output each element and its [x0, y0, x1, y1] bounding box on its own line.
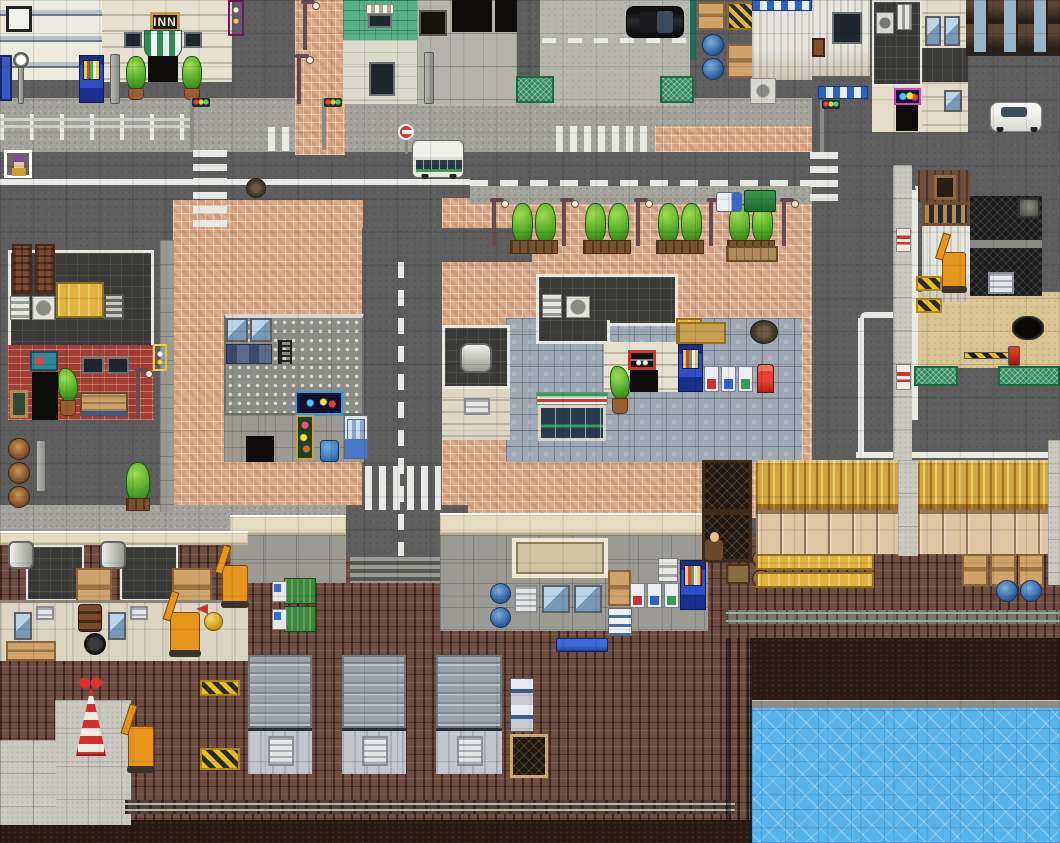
bar-shutters	[226, 344, 272, 364]
bar-neon-sign[interactable]	[295, 391, 343, 415]
tree-planters-3	[656, 240, 704, 254]
water-tank-1	[8, 541, 34, 569]
flower-stand[interactable]	[296, 415, 314, 460]
street-tree-6	[681, 203, 702, 243]
bar-wall	[224, 415, 364, 462]
blue-barrel-s2	[490, 607, 511, 628]
crane-rail	[726, 610, 1060, 624]
concrete-recess	[419, 10, 447, 36]
player-event-marker[interactable]	[4, 150, 32, 178]
inn-window-right	[184, 32, 202, 48]
sedan-roof	[639, 12, 657, 32]
chimney-1	[12, 244, 32, 294]
utility-pole-2	[424, 52, 434, 104]
warehouse-window-2	[108, 612, 126, 640]
east-edge-walk	[1048, 440, 1060, 585]
minibus[interactable]	[412, 140, 464, 178]
concrete-pad-2	[0, 740, 56, 825]
water-tank-2	[100, 541, 126, 569]
garage-door-1[interactable]	[452, 0, 492, 32]
container-stack	[510, 678, 534, 732]
crosswalk-east	[810, 152, 838, 202]
excavator-pad[interactable]	[128, 726, 154, 770]
vroad-dash	[398, 262, 404, 556]
warehouse-vent-1	[36, 606, 54, 620]
city-map: INN	[0, 0, 1060, 843]
recycle-bin-s-red[interactable]	[630, 583, 645, 608]
cream-roofband	[922, 48, 968, 82]
parking-dash	[542, 38, 688, 43]
trash-can[interactable]	[320, 440, 339, 462]
gray-box-stack	[658, 558, 678, 582]
brick-band-east	[655, 126, 812, 152]
blue-barrel-se1	[996, 580, 1018, 602]
guardrail	[0, 114, 190, 140]
street-tree-1	[512, 203, 533, 243]
site-entrance-door[interactable]	[934, 175, 956, 200]
label-crates-1	[962, 554, 988, 586]
recycle-bin-blue[interactable]	[721, 366, 736, 392]
site-left-walk	[893, 165, 912, 460]
wall-b-window-1	[542, 585, 570, 613]
white-sedan-windows	[1001, 107, 1027, 117]
shop-blue-awning	[818, 86, 868, 99]
pallet-stack	[608, 608, 632, 636]
street-tree-3	[585, 203, 606, 243]
menu-chalkboard[interactable]	[10, 390, 28, 418]
recycle-bin-s-green[interactable]	[664, 583, 679, 608]
gold-crates-row-a	[756, 554, 874, 570]
street-lamp-row-4	[709, 202, 713, 246]
store-roof-ext	[536, 320, 610, 344]
street-lamp-path-1	[303, 4, 307, 50]
cream-window-2	[944, 16, 960, 46]
vending-machine-dock[interactable]	[680, 560, 706, 610]
wall-b-band	[440, 513, 708, 535]
restaurant-sign[interactable]	[30, 351, 58, 371]
restaurant-window-1	[82, 357, 104, 374]
inn-awning	[144, 30, 182, 58]
roof-pipes	[897, 4, 912, 30]
green-fence-2	[660, 76, 694, 103]
clock-face	[13, 52, 29, 68]
street-lamp-path-2	[297, 58, 301, 104]
shed-corrugated-1	[752, 0, 812, 80]
stripe-bar-post	[1008, 346, 1020, 366]
wrecking-ball	[204, 612, 223, 631]
big-warehouse-roof-3	[436, 655, 502, 728]
big-warehouse-shutter-3	[457, 736, 483, 766]
store-awning	[536, 392, 608, 405]
wall-b-shutter-1	[514, 585, 538, 613]
warehouse-ground-crates	[6, 641, 56, 661]
green-dumpster	[744, 190, 776, 212]
green-building-window	[369, 62, 395, 96]
cargo-truck-1[interactable]	[284, 578, 316, 604]
ground-hole	[1012, 316, 1044, 340]
bench-wood	[80, 392, 128, 416]
minibus-wheels	[419, 174, 459, 179]
restaurant-window-2	[107, 357, 129, 374]
wood-platform	[726, 246, 778, 262]
white-sedan[interactable]	[990, 102, 1042, 132]
inn-entrance[interactable]	[148, 56, 178, 82]
derrick-wheels	[78, 676, 104, 690]
big-warehouse-roof-1	[248, 655, 312, 728]
small-truck[interactable]	[716, 192, 742, 212]
harbor-water	[752, 708, 1060, 843]
street-tree-4	[608, 203, 629, 243]
crate-stack-1	[697, 2, 725, 30]
lower-road-line	[856, 452, 1060, 458]
game-center-neon-sign[interactable]	[894, 88, 921, 105]
ac-unit-shed	[750, 78, 776, 104]
vending-machine-plaza[interactable]	[678, 344, 703, 392]
white-sedan-wheels	[995, 127, 1039, 132]
blue-barrel-se2	[1020, 580, 1042, 602]
square-sign	[6, 6, 32, 32]
excavator-yard-1[interactable]	[222, 565, 248, 605]
store-roof-ac	[542, 294, 562, 318]
stripe-bar	[964, 352, 1014, 359]
restaurant-plant-pot	[60, 400, 76, 416]
store-roof-fan	[566, 296, 590, 318]
minibus-windows	[416, 160, 462, 169]
cream-window-1	[925, 16, 941, 46]
cream-window-3	[944, 90, 962, 112]
pier-column	[726, 638, 752, 820]
wall-art	[812, 38, 825, 57]
excavator-site[interactable]	[942, 252, 966, 290]
traffic-light-3[interactable]	[820, 100, 824, 152]
manhole-small	[246, 178, 266, 198]
dock-worker-npc[interactable]	[705, 540, 723, 560]
crate-south	[608, 570, 631, 606]
flag-pole	[690, 0, 696, 60]
store-plant-pot	[612, 398, 628, 414]
vending-machine-inn[interactable]	[79, 55, 104, 103]
wall-b-window-2	[574, 585, 602, 613]
gold-warehouse-cols-2	[918, 510, 1060, 554]
roof-fan-unit	[32, 296, 55, 320]
cargo-rack-1	[702, 460, 752, 512]
cart-sign[interactable]	[628, 350, 656, 370]
yard-tree	[126, 462, 150, 502]
excavator-yard-2[interactable]	[170, 612, 200, 654]
street-lamp-row-3	[636, 202, 640, 246]
tree-planters-2	[583, 240, 631, 254]
inn-window-left	[124, 32, 142, 48]
minibus-stripe	[416, 169, 462, 172]
iron-pot	[1018, 198, 1040, 218]
wood-sign	[726, 564, 750, 584]
traffic-light-2[interactable]	[322, 98, 326, 150]
wood-barrel-3	[8, 486, 30, 508]
recycle-bin-s-blue[interactable]	[647, 583, 662, 608]
crosswalk-small	[268, 127, 292, 151]
safety-barrier-2	[916, 298, 942, 313]
garage-door-2[interactable]	[495, 0, 517, 32]
poster-board	[0, 55, 12, 101]
inn-sign[interactable]: INN	[150, 12, 180, 32]
street-tree-5	[658, 203, 679, 243]
dock-barrier-1	[200, 680, 240, 696]
tire-stack-black	[84, 633, 106, 655]
inn-plant-left	[126, 56, 146, 90]
red-banner	[153, 344, 167, 371]
warning-sign-1	[896, 228, 911, 252]
blue-bench[interactable]	[556, 638, 608, 652]
crosswalk-west	[193, 150, 227, 228]
inn-sign-text: INN	[153, 15, 177, 29]
dock-barrier-2	[200, 748, 240, 770]
green-fence-1	[516, 76, 554, 103]
bar-skylight-1	[226, 318, 248, 342]
wall-west-pillars	[160, 240, 174, 512]
water-tank	[460, 343, 492, 373]
wood-barrel-1	[8, 438, 30, 460]
cargo-truck-2[interactable]	[284, 606, 316, 632]
dock-edge-dark	[752, 638, 1060, 702]
sedan-windshield	[657, 11, 673, 33]
recycle-bin-red[interactable]	[704, 366, 719, 392]
street-lamp-row-1	[492, 202, 496, 246]
barred-window-building	[922, 202, 970, 226]
street-lamp-row-5	[782, 202, 786, 246]
warehouse-west-block	[0, 531, 248, 661]
window-awning	[366, 4, 394, 14]
blue-barrel-1	[702, 34, 724, 56]
store-windows	[538, 405, 606, 441]
restaurant-door[interactable]	[32, 372, 58, 420]
gold-warehouse-roof-1	[756, 460, 898, 510]
gold-warehouse-gap	[898, 460, 918, 556]
roof-ac	[876, 12, 894, 34]
blue-barrel-s1	[490, 583, 511, 604]
gold-crates-row-b	[756, 572, 874, 588]
player-sprite-body	[12, 168, 26, 176]
inn-plant-right	[182, 56, 202, 90]
street-lamp-restaurant	[136, 372, 140, 418]
big-warehouse-shutter-1	[268, 736, 294, 766]
site-fence-2	[998, 366, 1060, 386]
warehouse-roof-2	[120, 545, 178, 601]
black-sedan[interactable]	[626, 6, 684, 38]
big-warehouse-roof-2	[342, 655, 406, 728]
tank-building-vent	[464, 398, 490, 415]
pink-banner-sign	[228, 0, 244, 36]
store-entrance[interactable]	[630, 370, 658, 392]
safety-barrier-1	[916, 276, 942, 291]
site-fence-1	[914, 366, 958, 386]
stop-sign-post	[405, 140, 408, 154]
lattice-doors	[510, 734, 548, 778]
vending-machine-bar[interactable]	[344, 415, 368, 459]
quay-edge	[752, 700, 1060, 708]
tree-planters-1	[510, 240, 558, 254]
inn-plant-pot-left	[128, 88, 144, 100]
blue-barrel-2	[702, 58, 724, 80]
gold-warehouse-roof-2	[918, 460, 1060, 510]
utility-pole-yard	[36, 440, 46, 492]
corner-line-v	[858, 318, 864, 456]
apartment-brown	[966, 0, 1060, 56]
wall-b-sign-panel	[512, 538, 608, 578]
roof-crates	[56, 282, 104, 318]
shed-awning	[752, 0, 812, 11]
traffic-light-1[interactable]	[190, 98, 194, 150]
yard-tree-planter	[126, 498, 150, 511]
parking-entry-stripes	[556, 126, 654, 152]
red-postbox[interactable]	[757, 364, 774, 393]
plaza-bench-crates	[678, 322, 726, 344]
green-building-window-top	[368, 14, 392, 28]
manhole-large	[750, 320, 778, 344]
bar-skylight-2	[250, 318, 272, 342]
warning-sign-2	[896, 364, 911, 390]
chimney-2	[35, 244, 55, 294]
bar-door[interactable]	[246, 436, 274, 462]
utility-pole-1	[110, 54, 120, 104]
big-warehouse-shutter-2	[362, 736, 388, 766]
iron-louver	[988, 272, 1014, 294]
railway-track	[125, 800, 735, 814]
recycle-bin-green[interactable]	[738, 366, 753, 392]
center-line	[0, 179, 470, 185]
center-line-dashed	[470, 180, 812, 186]
crosswalk-south	[365, 466, 441, 510]
game-center-door[interactable]	[896, 105, 918, 131]
street-tree-2	[535, 203, 556, 243]
roof-roller	[104, 294, 124, 320]
roof-ladder	[278, 340, 292, 364]
roof-silver-box	[10, 296, 30, 320]
wood-barrel-2	[8, 462, 30, 484]
street-lamp-row-2	[562, 202, 566, 246]
warehouse-window-1	[14, 612, 32, 640]
iron-structure-band	[970, 240, 1042, 248]
warehouse-vent-2	[130, 606, 148, 620]
stop-sign-bar	[402, 130, 412, 134]
tire-stack	[78, 604, 102, 632]
gold-warehouse-cols-1	[756, 510, 898, 554]
shed-window	[832, 12, 862, 44]
